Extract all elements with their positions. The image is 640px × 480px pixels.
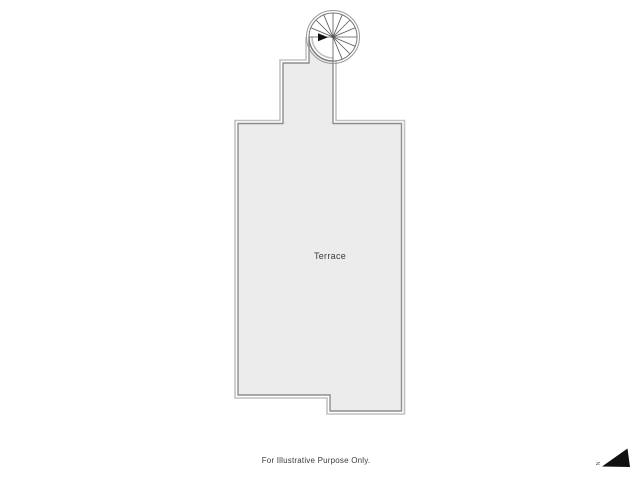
north-arrow-letter: N (594, 462, 600, 466)
north-arrow-triangle (602, 449, 630, 468)
terrace-outline (238, 37, 402, 411)
disclaimer-text: For Illustrative Purpose Only. (262, 456, 371, 465)
floor-plan-canvas: Terrace For Illustrative Purpose Only. N (0, 0, 640, 480)
stair-center-post (332, 36, 335, 39)
terrace-wall-inner-line (238, 37, 402, 411)
spiral-staircase-icon (307, 11, 360, 64)
north-arrow-icon: N (594, 449, 630, 468)
room-label-terrace: Terrace (314, 251, 346, 261)
floor-plan-page: Terrace For Illustrative Purpose Only. N (0, 0, 640, 480)
